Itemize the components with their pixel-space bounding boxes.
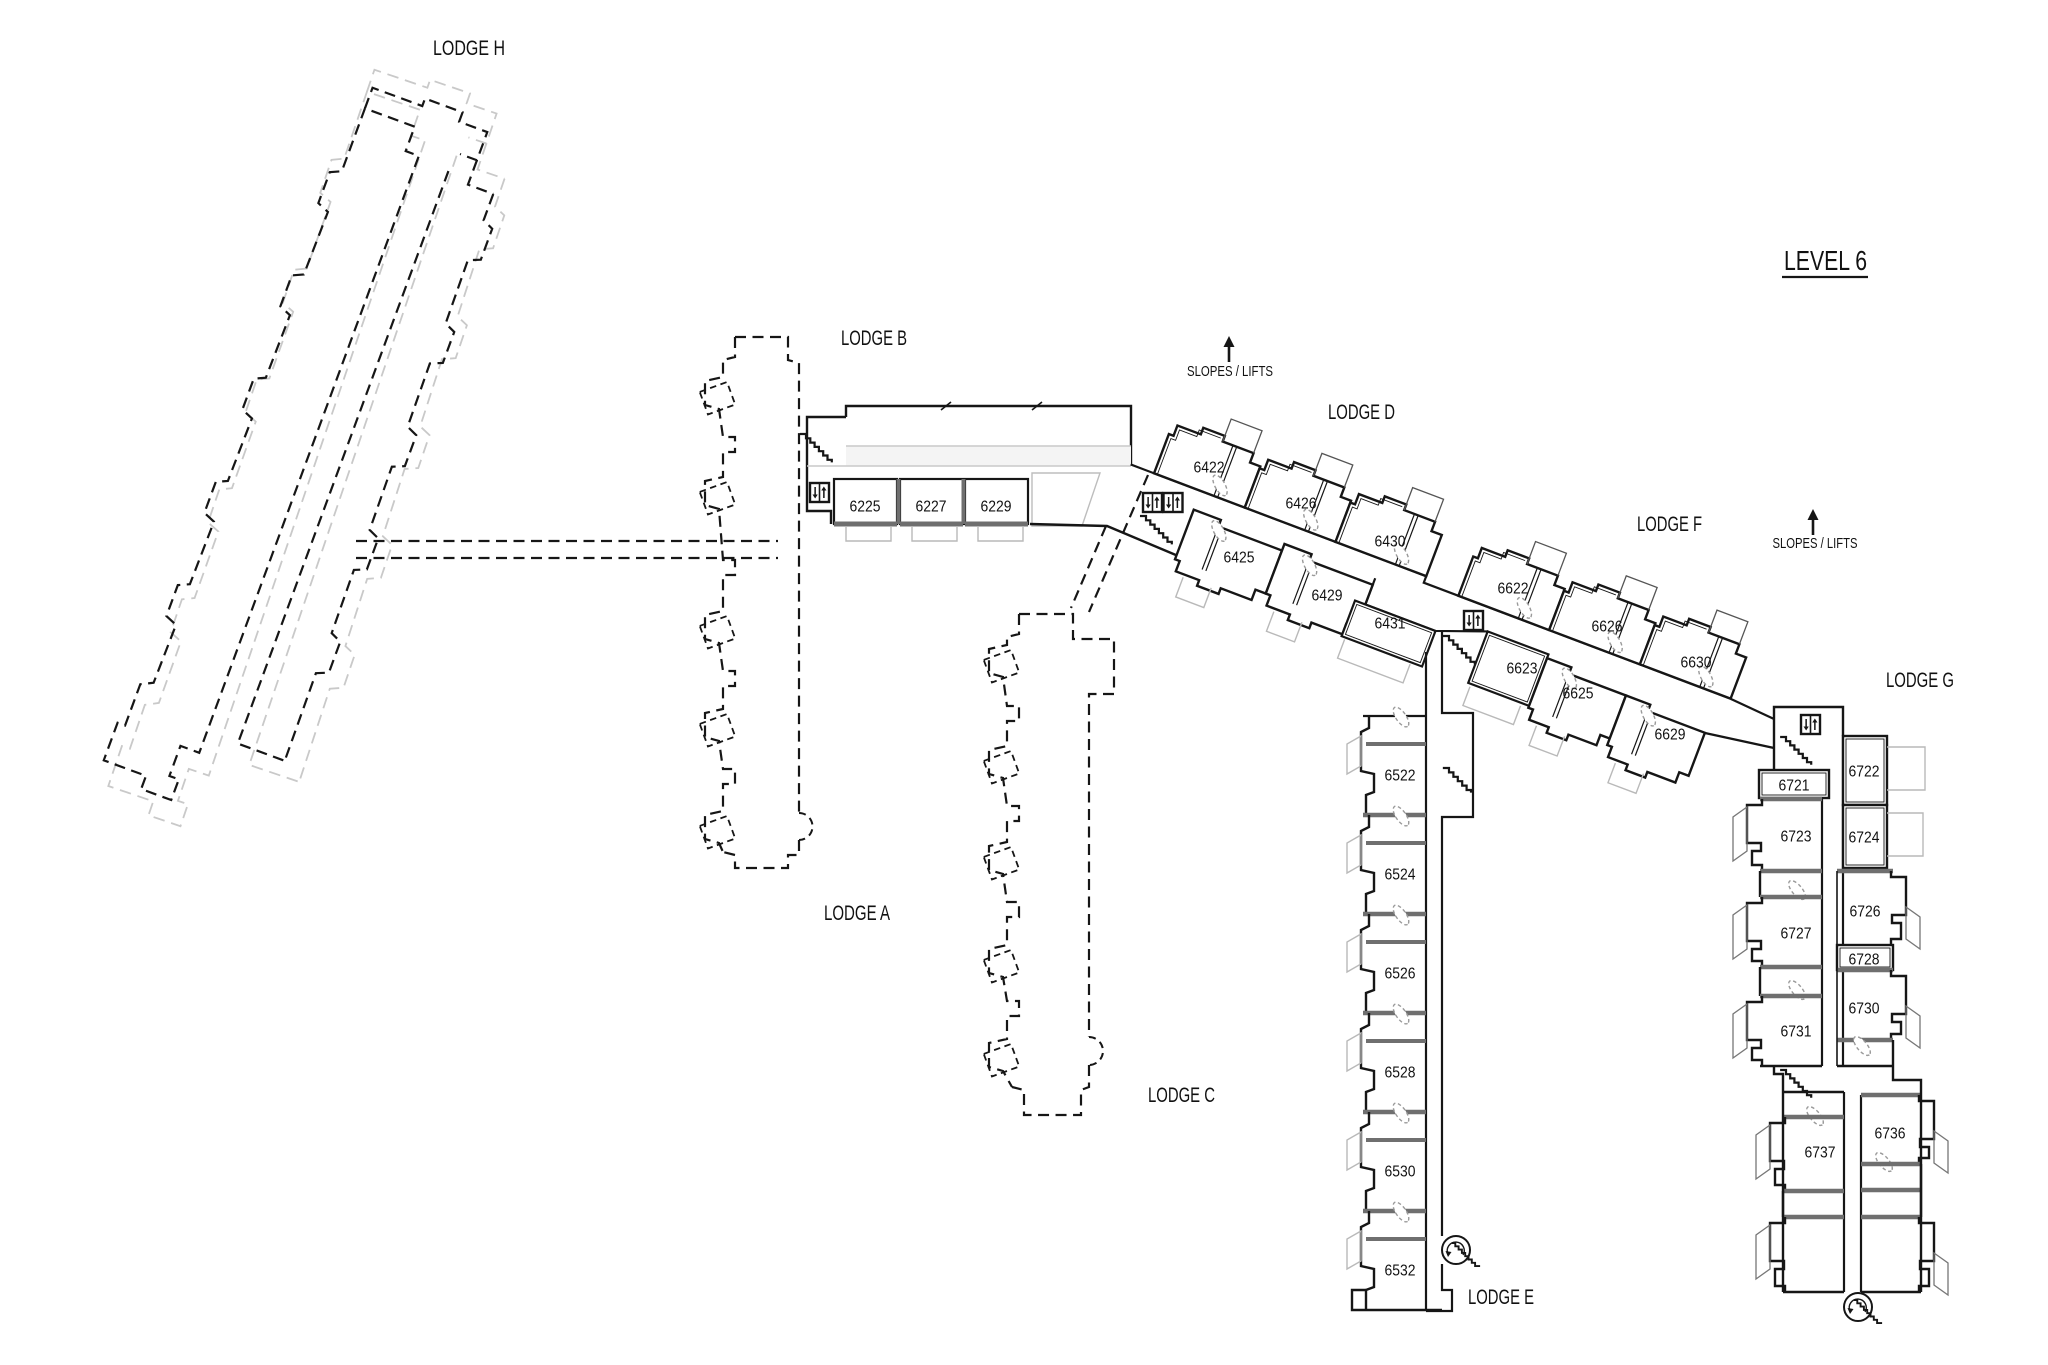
svg-text:6737: 6737 bbox=[1805, 1145, 1836, 1162]
svg-text:LODGE H: LODGE H bbox=[433, 37, 505, 60]
svg-text:LODGE F: LODGE F bbox=[1637, 513, 1702, 536]
svg-text:6528: 6528 bbox=[1385, 1065, 1416, 1082]
svg-text:LODGE C: LODGE C bbox=[1148, 1084, 1215, 1107]
svg-text:6227: 6227 bbox=[916, 499, 947, 516]
svg-text:6430: 6430 bbox=[1375, 534, 1406, 551]
svg-text:6530: 6530 bbox=[1385, 1164, 1416, 1181]
svg-text:6626: 6626 bbox=[1592, 619, 1623, 636]
svg-text:6630: 6630 bbox=[1681, 655, 1712, 672]
svg-text:LODGE G: LODGE G bbox=[1886, 669, 1954, 692]
svg-text:6426: 6426 bbox=[1286, 496, 1317, 513]
svg-text:SLOPES / LIFTS: SLOPES / LIFTS bbox=[1773, 535, 1858, 552]
svg-text:6225: 6225 bbox=[850, 499, 881, 516]
svg-text:6625: 6625 bbox=[1563, 686, 1594, 703]
svg-text:6229: 6229 bbox=[981, 499, 1012, 516]
svg-text:6728: 6728 bbox=[1849, 952, 1880, 969]
svg-text:6425: 6425 bbox=[1224, 550, 1255, 567]
svg-text:6422: 6422 bbox=[1194, 460, 1225, 477]
svg-text:6429: 6429 bbox=[1312, 588, 1343, 605]
svg-text:6526: 6526 bbox=[1385, 966, 1416, 983]
svg-text:6727: 6727 bbox=[1781, 926, 1812, 943]
svg-text:LODGE A: LODGE A bbox=[824, 902, 890, 925]
svg-text:6622: 6622 bbox=[1498, 581, 1529, 598]
svg-text:6522: 6522 bbox=[1385, 768, 1416, 785]
svg-text:6723: 6723 bbox=[1781, 829, 1812, 846]
svg-text:6736: 6736 bbox=[1875, 1126, 1906, 1143]
svg-text:6629: 6629 bbox=[1655, 727, 1686, 744]
svg-text:LODGE D: LODGE D bbox=[1328, 401, 1395, 424]
svg-text:6431: 6431 bbox=[1375, 616, 1406, 633]
svg-text:6532: 6532 bbox=[1385, 1263, 1416, 1280]
svg-text:6524: 6524 bbox=[1385, 867, 1416, 884]
svg-text:6722: 6722 bbox=[1849, 764, 1880, 781]
svg-text:6721: 6721 bbox=[1779, 778, 1810, 795]
svg-text:SLOPES / LIFTS: SLOPES / LIFTS bbox=[1187, 363, 1273, 380]
svg-text:6730: 6730 bbox=[1849, 1001, 1880, 1018]
svg-text:6724: 6724 bbox=[1849, 830, 1880, 847]
svg-text:LODGE B: LODGE B bbox=[841, 327, 907, 350]
svg-text:6726: 6726 bbox=[1850, 904, 1881, 921]
svg-text:LODGE E: LODGE E bbox=[1468, 1286, 1534, 1309]
svg-text:6623: 6623 bbox=[1507, 661, 1538, 678]
svg-text:6731: 6731 bbox=[1781, 1024, 1812, 1041]
svg-text:LEVEL 6: LEVEL 6 bbox=[1784, 245, 1867, 276]
